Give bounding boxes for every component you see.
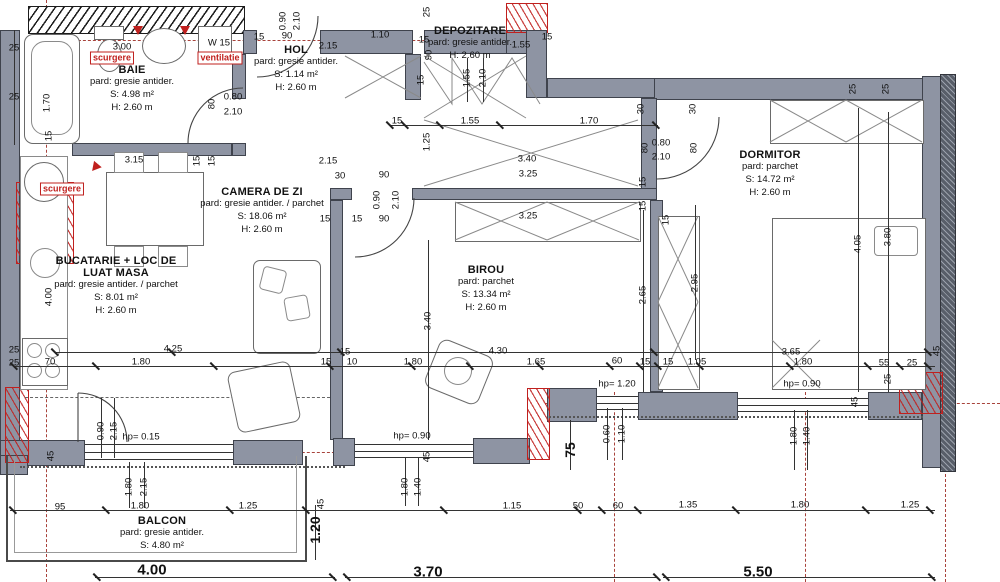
dimension-label: 1.55 [512, 40, 531, 50]
dimension-label: 1.25 [422, 133, 432, 152]
room-label-hol: HOL pard: gresie antider. S: 1.14 m² H: … [236, 44, 356, 94]
dimension-label: 0.80 [652, 138, 671, 148]
sofa-cushion [283, 294, 311, 322]
dimension-line [888, 112, 889, 392]
room-floor: pard: gresie antider. / parchet [175, 198, 350, 211]
dimension-label: 30 [688, 104, 698, 115]
dimension-label: 1.40 [802, 427, 812, 446]
room-area: S: 8.01 m² [34, 292, 199, 305]
room-name: BUCATARIE + LOC DE LUAT MASA [51, 255, 181, 279]
axis-line [614, 392, 615, 582]
dimension-label: 1.55 [462, 69, 472, 88]
dimension-line [345, 577, 658, 578]
dimension-label: 10 [347, 357, 358, 367]
dimension-label: 90 [282, 31, 293, 41]
dimension-line [95, 577, 335, 578]
dimension-label: 90 [379, 170, 390, 180]
room-floor: pard: parchet [426, 276, 546, 289]
room-label-camera-de-zi: CAMERA DE ZI pard: gresie antider. / par… [175, 186, 350, 236]
floor-plan: BAIE pard: gresie antider. S: 4.98 m² H:… [0, 0, 1000, 582]
dimension-label: 15 [44, 131, 54, 142]
dimension-label: 2.10 [224, 107, 243, 117]
dimension-label: hp= 1.20 [598, 379, 635, 389]
dimension-label: 45 [422, 452, 432, 463]
dimension-label: 15 [638, 177, 648, 188]
room-height: H: 2.60 m [426, 302, 546, 315]
dimension-label: 4.00 [137, 563, 166, 578]
dimension-label: 15 [192, 156, 202, 167]
room-height: H: 2.60 m [710, 187, 830, 200]
dimension-label: 2.10 [652, 152, 671, 162]
dimension-label: 25 [883, 374, 893, 385]
dimension-label: 25 [848, 84, 858, 95]
dimension-label: 90 [424, 50, 434, 61]
room-label-baie: BAIE pard: gresie antider. S: 4.98 m² H:… [67, 64, 197, 114]
room-height: H: 2.60 m [67, 102, 197, 115]
drain-arrow-icon [133, 26, 143, 35]
dimension-label: 2.15 [139, 478, 149, 497]
dimension-label: 2.65 [638, 286, 648, 305]
room-name: HOL [236, 44, 356, 56]
dimension-label: 0.90 [278, 12, 288, 31]
dimension-label: hp= 0.15 [122, 432, 159, 442]
toilet-tank [94, 26, 124, 40]
dimension-label: 90 [379, 214, 390, 224]
wall [232, 143, 246, 156]
axis-line [805, 392, 806, 582]
room-label-bucatarie: BUCATARIE + LOC DE LUAT MASA pard: gresi… [34, 255, 199, 317]
room-name: CAMERA DE ZI [175, 186, 350, 198]
dimension-label: 1.70 [42, 94, 52, 113]
room-floor: pard: gresie antider. [67, 76, 197, 89]
dimension-label: 30 [636, 104, 646, 115]
room-name: BIROU [426, 264, 546, 276]
sill-line [549, 416, 923, 418]
dimension-label: 60 [613, 501, 624, 511]
dimension-label: 75 [563, 442, 577, 458]
room-area: S: 13.34 m² [426, 289, 546, 302]
annotation-label: ventilatie [197, 52, 242, 65]
annotation-label: scurgere [40, 183, 84, 196]
annotation-label: scurgere [90, 52, 134, 65]
dimension-label: 5.50 [743, 565, 772, 580]
room-name: BAIE [67, 64, 197, 76]
drain-arrow-icon [180, 26, 190, 35]
room-floor: pard: gresie antider. / parchet [34, 279, 199, 292]
dimension-label: hp= 0.90 [393, 431, 430, 441]
dimension-label: 2.10 [292, 12, 302, 31]
dimension-label: 3.40 [518, 154, 537, 164]
dimension-label: 45 [850, 397, 860, 408]
dimension-label: 1.25 [239, 501, 258, 511]
pillow [874, 226, 918, 256]
dimension-label: 0.90 [96, 422, 106, 441]
dimension-label: 1.80 [791, 500, 810, 510]
dimension-label: 2.15 [109, 422, 119, 441]
dimension-label: 1.40 [413, 478, 423, 497]
armchair [226, 360, 301, 434]
dimension-label: 1.80 [794, 357, 813, 367]
dimension-label: 70 [45, 357, 56, 367]
dimension-label: 25 [881, 84, 891, 95]
dimension-label: 15 [663, 357, 674, 367]
room-name: DORMITOR [710, 149, 830, 161]
dimension-label: 30 [335, 171, 346, 181]
dimension-label: 45 [932, 346, 942, 357]
dimension-label: 80 [640, 143, 650, 154]
dimension-label: 1.10 [617, 425, 627, 444]
room-floor: pard: parchet [710, 161, 830, 174]
room-name: BALCON [87, 515, 237, 527]
dimension-label: 25 [907, 358, 918, 368]
dimension-label: 15 [352, 214, 363, 224]
dimension-label: 3.25 [519, 169, 538, 179]
dimension-label: 3.25 [519, 211, 538, 221]
dimension-label: 3.70 [413, 565, 442, 580]
dimension-label: 3.40 [423, 312, 433, 331]
shaft-hatch [5, 387, 29, 463]
dimension-label: 1.10 [371, 30, 390, 40]
dimension-label: 15 [207, 156, 217, 167]
dimension-label: 55 [879, 358, 890, 368]
dimension-label: 15 [320, 214, 331, 224]
wall [72, 143, 232, 156]
dimension-label: 1.80 [789, 427, 799, 446]
shaft-hatch [527, 388, 550, 460]
dimension-label: 4.05 [853, 235, 863, 254]
room-floor: pard: gresie antider. [87, 527, 237, 540]
wall [547, 78, 655, 98]
dimension-label: 15 [254, 32, 265, 42]
dimension-line [663, 577, 935, 578]
closet [770, 100, 924, 144]
room-area: S: 14.72 m² [710, 174, 830, 187]
dimension-label: 1.20 [308, 516, 322, 543]
dimension-label: 1.35 [679, 500, 698, 510]
window [597, 396, 638, 410]
dimension-label: 0.80 [224, 92, 243, 102]
dimension-label: W 15 [208, 38, 230, 48]
drain-arrow-icon [88, 161, 101, 174]
wall [473, 438, 530, 464]
dimension-label: 45 [316, 499, 326, 510]
closet [455, 202, 641, 242]
dimension-label: 80 [207, 99, 217, 110]
dimension-label: 4.00 [44, 288, 54, 307]
dimension-line [390, 125, 658, 126]
room-area: S: 4.80 m² [87, 540, 237, 553]
door-arc [355, 198, 414, 257]
dimension-label: 0.90 [372, 191, 382, 210]
dimension-label: 25 [9, 92, 20, 102]
room-label-balcon: BALCON pard: gresie antider. S: 4.80 m² [87, 515, 237, 553]
room-floor: pard: gresie antider. [236, 56, 356, 69]
room-label-birou: BIROU pard: parchet S: 13.34 m² H: 2.60 … [426, 264, 546, 314]
window [355, 444, 473, 458]
dimension-label: 15 [416, 75, 426, 86]
wall [333, 438, 355, 466]
dimension-label: 3.00 [113, 42, 132, 52]
dimension-label: 2.15 [319, 156, 338, 166]
dimension-label: 25 [422, 7, 432, 18]
chair [158, 152, 188, 173]
room-height: H: 2.60 m [175, 224, 350, 237]
dimension-label: 1.25 [901, 500, 920, 510]
dimension-label: 80 [689, 143, 699, 154]
dimension-label: 15 [419, 35, 430, 45]
burner [27, 343, 42, 358]
dimension-label: 25 [9, 43, 20, 53]
dimension-label: 0.60 [602, 425, 612, 444]
dimension-label: 2.15 [319, 41, 338, 51]
dimension-label: 15 [661, 215, 671, 226]
dimension-label: 1.80 [131, 501, 150, 511]
dimension-label: 3.80 [883, 228, 893, 247]
dimension-label: 1.70 [580, 116, 599, 126]
dimension-label: 95 [55, 502, 66, 512]
dimension-label: 4.30 [489, 346, 508, 356]
dimension-label: 25 [9, 345, 20, 355]
dimension-label: 45 [46, 451, 56, 462]
dimension-label: 15 [542, 32, 553, 42]
dimension-label: 1.80 [400, 478, 410, 497]
dimension-label: 2.10 [391, 191, 401, 210]
room-height: H: 2.60 m [236, 82, 356, 95]
wall [412, 188, 657, 200]
dimension-label: 15 [638, 201, 648, 212]
room-label-dormitor: DORMITOR pard: parchet S: 14.72 m² H: 2.… [710, 149, 830, 199]
dimension-label: 60 [612, 356, 623, 366]
dimension-label: 1.80 [132, 357, 151, 367]
dimension-label: 2.95 [690, 274, 700, 293]
dimension-label: 2.10 [478, 69, 488, 88]
dimension-label: 1.55 [461, 116, 480, 126]
dimension-label: 1.15 [503, 501, 522, 511]
room-area: S: 1.14 m² [236, 69, 356, 82]
room-height: H: 2.60 m [34, 305, 199, 318]
dimension-label: 1.80 [124, 478, 134, 497]
dimension-label: hp= 0.90 [783, 379, 820, 389]
dimension-label: 3.15 [125, 155, 144, 165]
room-area: S: 4.98 m² [67, 89, 197, 102]
